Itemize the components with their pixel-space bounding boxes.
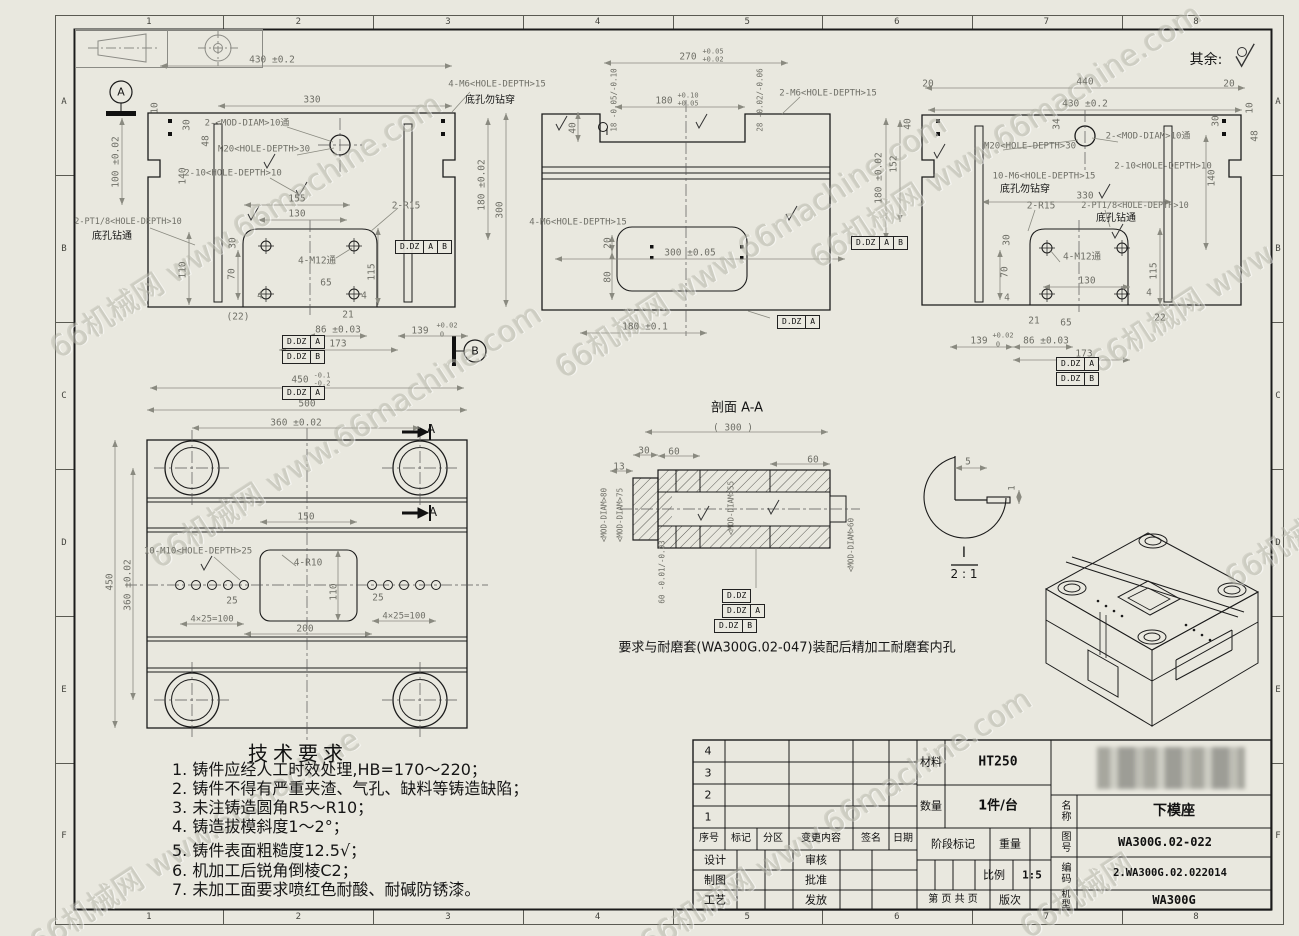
- tech-item: 1. 铸件应经人工时效处理,HB=170～220；: [172, 762, 487, 778]
- tech-item: 5. 铸件表面粗糙度12.5√；: [172, 843, 366, 859]
- tech-item: 3. 未注铸造圆角R5～R10；: [172, 800, 373, 816]
- tech-item: 4. 铸造拔模斜度1～2°；: [172, 819, 349, 835]
- tech-item: 7. 未加工面要求喷红色耐酸、耐碱防锈漆。: [172, 882, 480, 898]
- tech-item: 6. 机加工后锐角倒棱C2；: [172, 863, 358, 879]
- technical-requirements: 技术要求 1. 铸件应经人工时效处理,HB=170～220； 2. 铸件不得有严…: [0, 0, 1299, 936]
- tech-item: 2. 铸件不得有严重夹渣、气孔、缺料等铸造缺陷；: [172, 781, 528, 797]
- engineering-drawing-sheet: 66机械网 www.66machine.com66机械网 www.66machi…: [0, 0, 1299, 936]
